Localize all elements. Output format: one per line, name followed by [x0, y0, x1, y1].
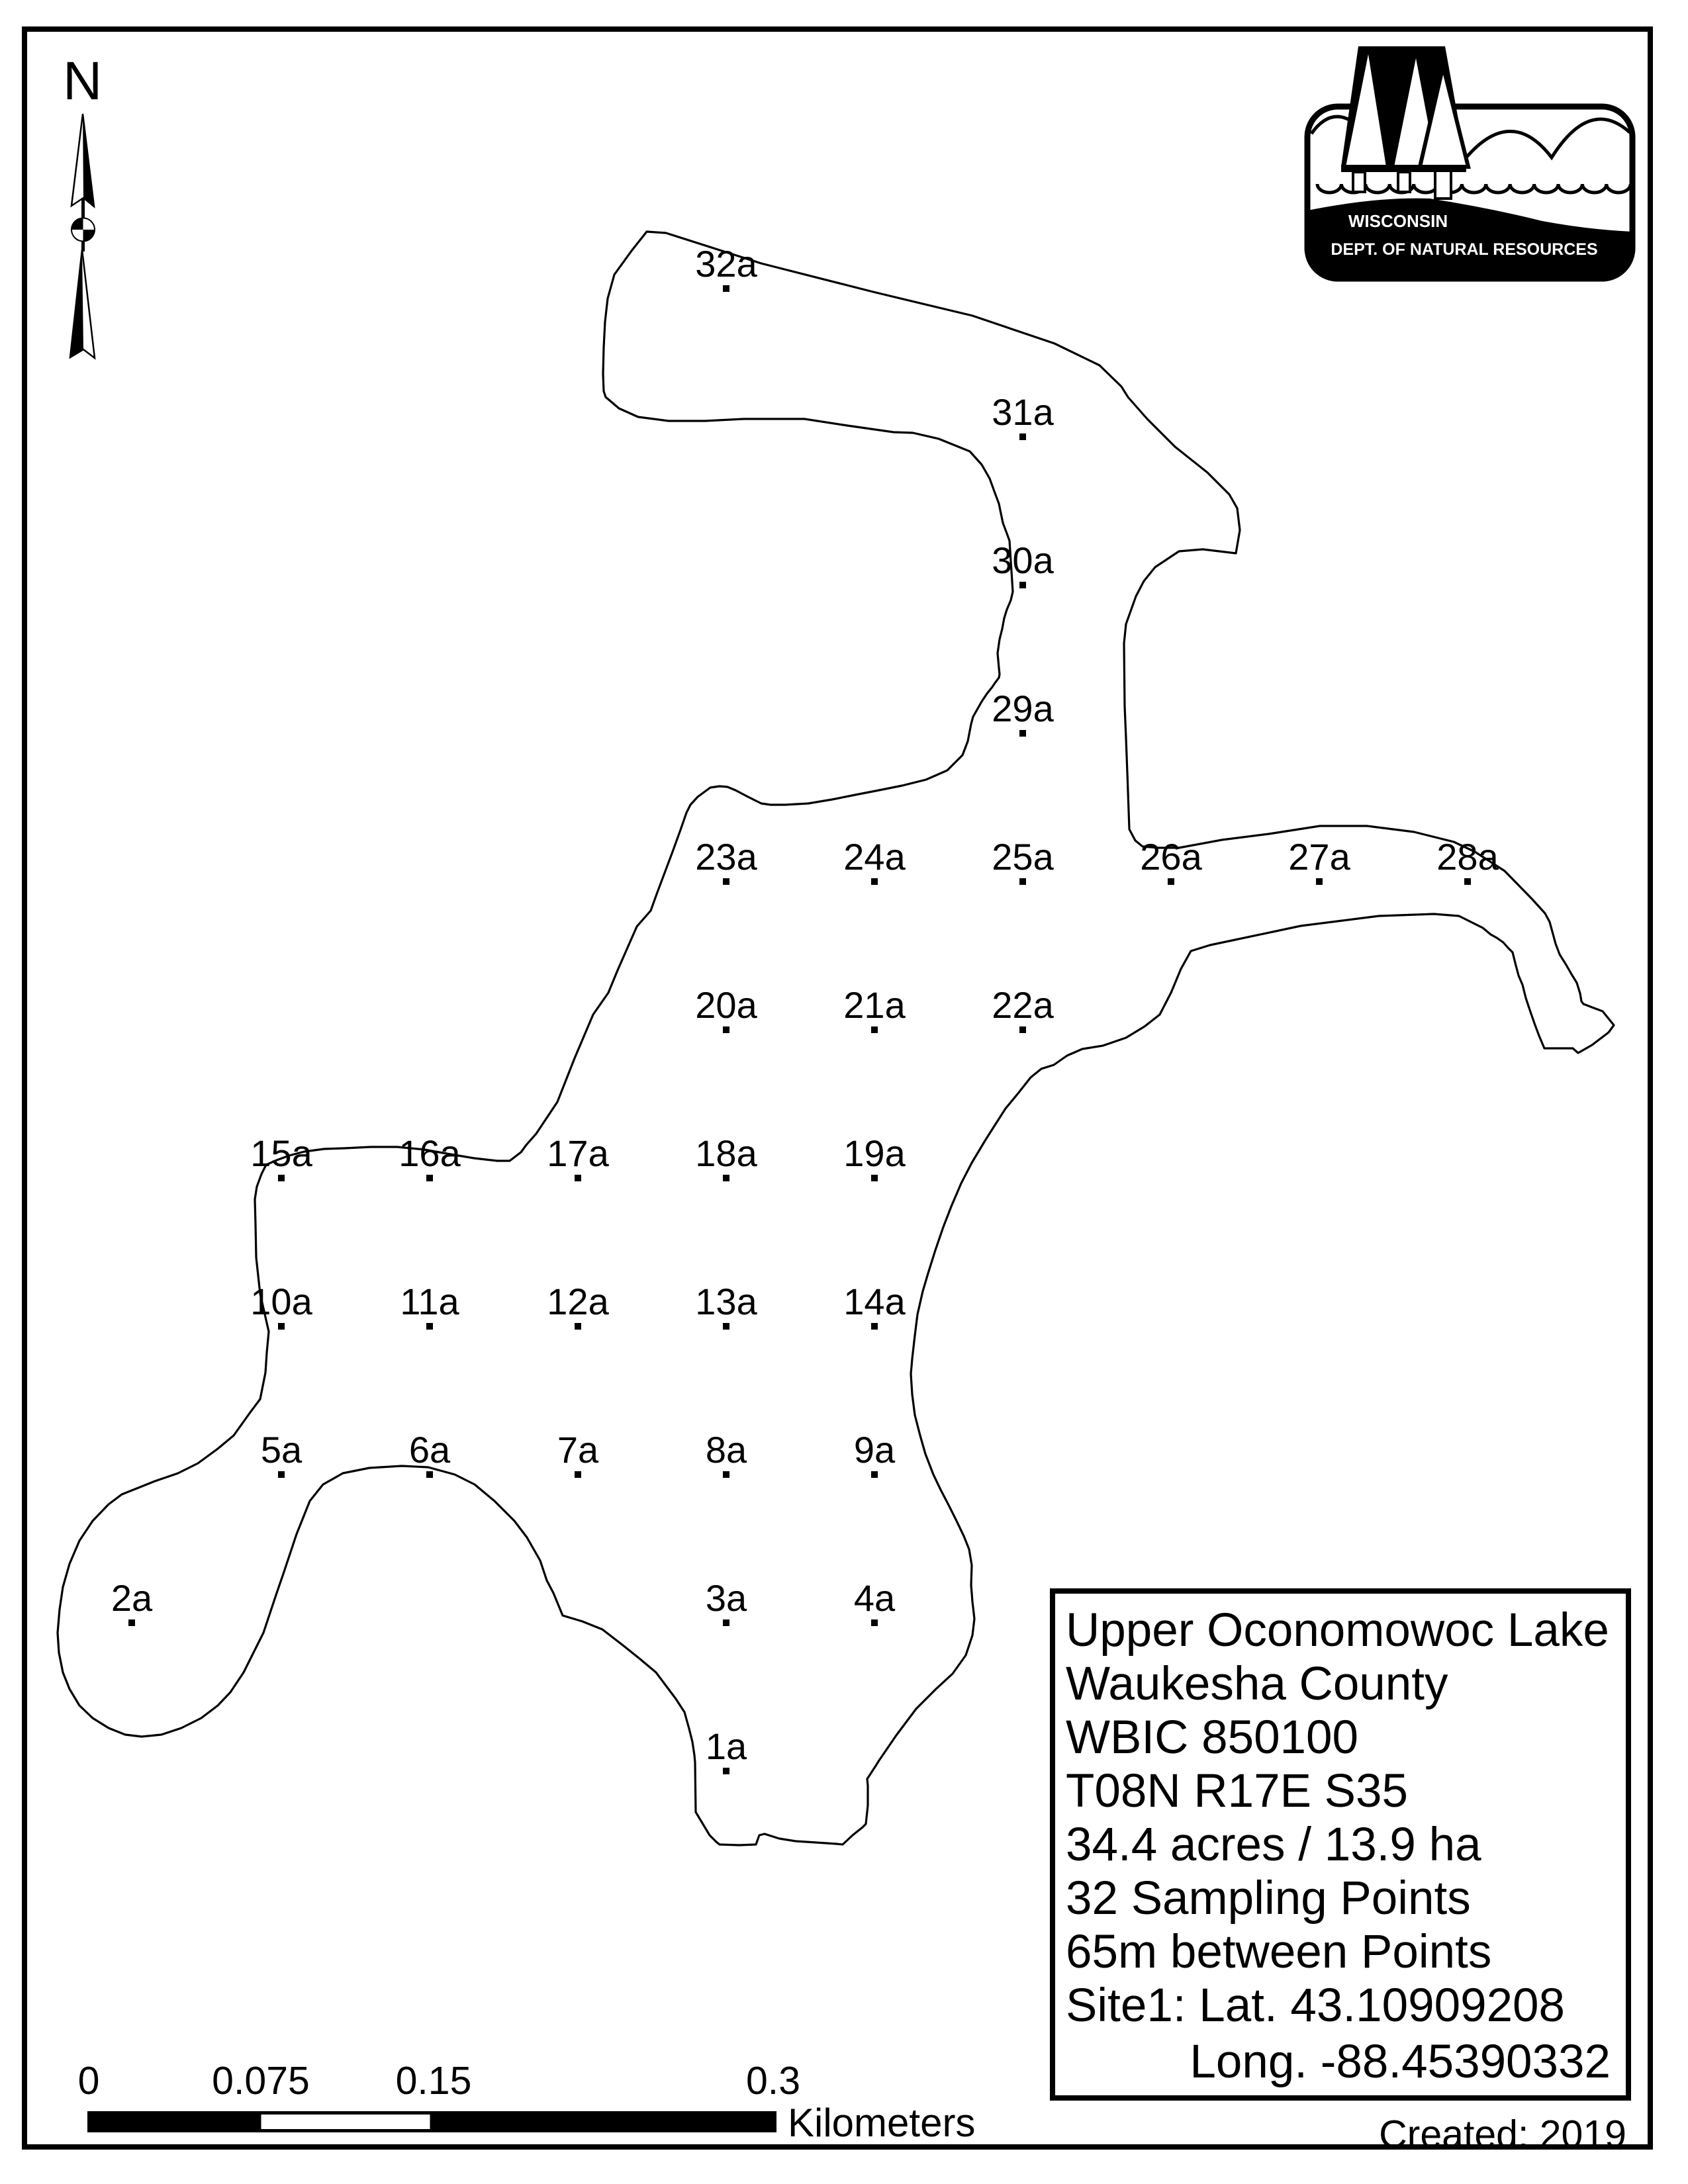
svg-text:19a: 19a: [843, 1132, 906, 1174]
svg-text:4a: 4a: [854, 1577, 896, 1619]
svg-text:14a: 14a: [843, 1281, 906, 1322]
svg-text:Upper Oconomowoc Lake: Upper Oconomowoc Lake: [1066, 1604, 1609, 1657]
svg-text:3a: 3a: [706, 1577, 747, 1619]
svg-text:2a: 2a: [111, 1577, 153, 1619]
svg-text:22a: 22a: [992, 984, 1054, 1026]
svg-text:25a: 25a: [992, 836, 1054, 878]
svg-text:6a: 6a: [409, 1429, 451, 1471]
svg-text:0: 0: [78, 2059, 100, 2103]
svg-text:24a: 24a: [843, 836, 906, 878]
svg-text:1a: 1a: [706, 1725, 747, 1767]
svg-text:8a: 8a: [706, 1429, 747, 1471]
svg-text:32 Sampling Points: 32 Sampling Points: [1066, 1872, 1471, 1925]
svg-text:Site1: Lat. 43.10909208: Site1: Lat. 43.10909208: [1066, 1979, 1565, 2032]
svg-text:0.3: 0.3: [746, 2059, 800, 2103]
svg-text:10a: 10a: [250, 1281, 312, 1322]
svg-text:0.075: 0.075: [212, 2059, 310, 2103]
svg-text:5a: 5a: [261, 1429, 303, 1471]
svg-text:Long. -88.45390332: Long. -88.45390332: [1190, 2036, 1611, 2088]
svg-text:65m between Points: 65m between Points: [1066, 1926, 1491, 1978]
svg-text:Kilometers: Kilometers: [788, 2101, 975, 2145]
svg-text:27a: 27a: [1288, 836, 1350, 878]
svg-text:T08N R17E S35: T08N R17E S35: [1066, 1765, 1408, 1817]
svg-text:N: N: [63, 51, 102, 111]
svg-text:32a: 32a: [695, 243, 757, 285]
svg-text:15a: 15a: [250, 1132, 312, 1174]
svg-text:WISCONSIN: WISCONSIN: [1348, 211, 1448, 231]
svg-text:30a: 30a: [992, 539, 1054, 581]
svg-text:21a: 21a: [843, 984, 906, 1026]
svg-text:20a: 20a: [695, 984, 757, 1026]
svg-text:17a: 17a: [547, 1132, 609, 1174]
svg-text:23a: 23a: [695, 836, 757, 878]
svg-text:WBIC 850100: WBIC 850100: [1066, 1711, 1358, 1764]
svg-text:16a: 16a: [399, 1132, 461, 1174]
svg-text:11a: 11a: [400, 1281, 459, 1322]
svg-text:29a: 29a: [992, 688, 1054, 729]
svg-text:34.4 acres / 13.9 ha: 34.4 acres / 13.9 ha: [1066, 1819, 1481, 1871]
svg-text:Created: 2019: Created: 2019: [1379, 2113, 1626, 2156]
svg-text:13a: 13a: [695, 1281, 757, 1322]
svg-text:12a: 12a: [547, 1281, 609, 1322]
svg-text:0.15: 0.15: [396, 2059, 472, 2103]
svg-text:28a: 28a: [1436, 836, 1499, 878]
svg-text:18a: 18a: [695, 1132, 757, 1174]
svg-text:9a: 9a: [854, 1429, 896, 1471]
svg-text:31a: 31a: [992, 391, 1054, 433]
svg-text:7a: 7a: [557, 1429, 599, 1471]
svg-text:Waukesha County: Waukesha County: [1066, 1658, 1448, 1710]
svg-text:26a: 26a: [1140, 836, 1202, 878]
svg-text:DEPT. OF NATURAL RESOURCES: DEPT. OF NATURAL RESOURCES: [1331, 240, 1597, 259]
